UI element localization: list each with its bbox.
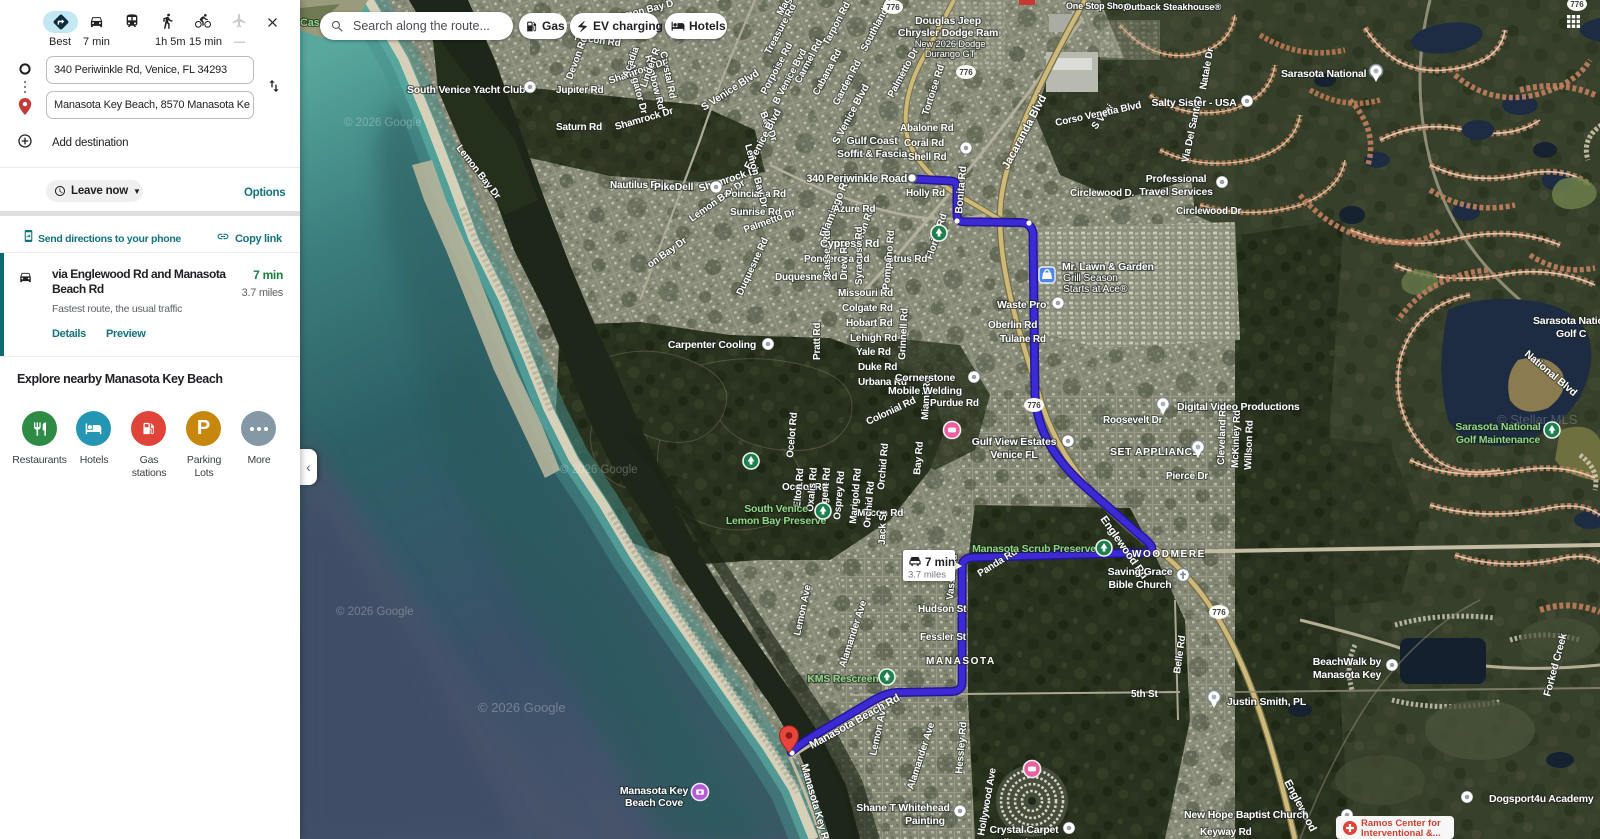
svg-text:Azure Rd: Azure Rd [833,204,875,215]
svg-text:Bible Church: Bible Church [1109,579,1172,591]
svg-text:© 2026 Google: © 2026 Google [336,606,414,618]
svg-text:Coral Rd: Coral Rd [904,138,944,149]
svg-text:Venice FL: Venice FL [990,449,1038,461]
svg-text:Dogsport4u Academy: Dogsport4u Academy [1489,793,1594,805]
svg-text:Lehigh Rd: Lehigh Rd [850,333,897,344]
svg-text:BeachWalk by: BeachWalk by [1313,656,1382,668]
svg-text:Roosevelt Dr: Roosevelt Dr [1103,415,1163,426]
svg-text:Soffit & Fascia: Soffit & Fascia [837,148,907,160]
svg-text:Willson Rd: Willson Rd [1243,420,1256,470]
svg-text:Painting: Painting [905,815,945,827]
svg-text:© 2026 Google: © 2026 Google [560,464,638,476]
svg-text:Lemon Bay Preserve: Lemon Bay Preserve [726,515,827,527]
svg-text:© 2026 Google: © 2026 Google [344,117,422,129]
svg-text:South Venice Yacht Club: South Venice Yacht Club [407,84,525,96]
svg-text:Waste Pro: Waste Pro [997,299,1046,311]
svg-text:Fessler St: Fessler St [920,632,967,643]
svg-text:Justin Smith, PL: Justin Smith, PL [1227,696,1307,708]
svg-text:New Hope Baptist Church: New Hope Baptist Church [1184,809,1308,821]
svg-text:776: 776 [1027,401,1041,410]
svg-text:Tulane Rd: Tulane Rd [1000,334,1046,345]
svg-text:Chrysler Dodge Ram: Chrysler Dodge Ram [898,27,998,39]
svg-text:One Stop Shop: One Stop Shop [1066,1,1129,11]
svg-text:Manasota Key: Manasota Key [620,785,689,797]
svg-text:776: 776 [959,68,973,77]
svg-text:Hobart Rd: Hobart Rd [846,318,893,329]
svg-text:Saturn Rd: Saturn Rd [556,122,602,133]
svg-text:7 min: 7 min [925,557,955,569]
svg-text:Hudson St: Hudson St [918,604,967,615]
svg-text:Crystal Carpet: Crystal Carpet [990,824,1060,836]
svg-text:5th St: 5th St [1131,689,1158,700]
svg-text:Duke Rd: Duke Rd [858,362,897,373]
svg-text:Durango GT: Durango GT [925,49,976,60]
svg-text:© 2026 Google: © 2026 Google [478,700,566,715]
svg-text:Cas: Cas [300,17,320,29]
svg-text:Sarasota Natio: Sarasota Natio [1533,315,1600,327]
svg-text:WOODMERE: WOODMERE [1132,549,1206,560]
svg-text:776: 776 [1570,0,1584,9]
svg-text:Carpenter Cooling: Carpenter Cooling [668,339,756,351]
svg-text:Circlewood D.: Circlewood D. [1070,188,1134,199]
svg-text:Sarasota National: Sarasota National [1281,68,1367,80]
svg-text:Outback Steakhouse®: Outback Steakhouse® [1124,2,1221,13]
svg-text:Colgate Rd: Colgate Rd [842,303,893,314]
svg-text:Shell Rd: Shell Rd [908,152,946,163]
svg-text:Saving Grace: Saving Grace [1108,566,1173,578]
svg-text:Pierce Dr: Pierce Dr [1166,471,1208,482]
svg-text:Cornerstone: Cornerstone [895,372,956,384]
svg-text:Circlewood Dr: Circlewood Dr [1176,206,1241,217]
svg-text:Salty Sister - USA: Salty Sister - USA [1151,97,1237,109]
svg-text:Pratt Rd: Pratt Rd [812,323,823,360]
svg-text:3.7 miles: 3.7 miles [908,570,946,581]
svg-text:Starts at Ace®: Starts at Ace® [1063,283,1128,295]
svg-text:776: 776 [1212,608,1226,617]
svg-text:Manasota Key: Manasota Key [1313,669,1382,681]
svg-text:Cypress Rd: Cypress Rd [820,238,879,250]
svg-text:Interventional &...: Interventional &... [1361,828,1441,839]
svg-text:South Venice: South Venice [744,503,808,515]
svg-text:Jupiter Rd: Jupiter Rd [556,85,604,96]
svg-text:© Stellar MLS: © Stellar MLS [1497,412,1578,427]
svg-text:Syracuse Rd: Syracuse Rd [854,227,865,285]
svg-text:Travel Services: Travel Services [1139,186,1213,198]
svg-text:Douglas Jeep: Douglas Jeep [915,15,981,27]
svg-text:Digital Video Productions: Digital Video Productions [1177,401,1300,413]
svg-text:KMS Rescreen: KMS Rescreen [807,673,878,685]
svg-text:Beach Cove: Beach Cove [625,797,683,809]
svg-text:Jack St: Jack St [877,510,889,545]
svg-text:Abalone Rd: Abalone Rd [900,123,954,134]
svg-text:Professional: Professional [1146,173,1207,185]
svg-text:Keyway Rd: Keyway Rd [1200,827,1252,838]
svg-text:Mobile Welding: Mobile Welding [888,385,962,397]
svg-text:340 Periwinkle Road: 340 Periwinkle Road [806,173,907,185]
svg-text:776: 776 [886,3,900,12]
svg-text:Golf Maintenance: Golf Maintenance [1456,434,1541,446]
svg-text:Purdue Rd: Purdue Rd [930,398,979,409]
svg-text:Gulf Coast: Gulf Coast [846,135,898,147]
svg-text:Golf C: Golf C [1556,328,1587,340]
svg-text:Holly Rd: Holly Rd [906,188,945,199]
svg-text:Shane T Whitehead: Shane T Whitehead [856,802,949,814]
svg-text:Manasota Scrub Preserve: Manasota Scrub Preserve [972,543,1096,555]
svg-text:MANASOTA: MANASOTA [926,656,996,667]
svg-text:Oberlin Rd: Oberlin Rd [988,320,1037,331]
svg-text:Gulf View Estates: Gulf View Estates [972,436,1057,448]
svg-text:PikeDell: PikeDell [654,181,694,193]
svg-text:Yale Rd: Yale Rd [856,347,891,358]
svg-text:SET APPLIANCE: SET APPLIANCE [1110,446,1200,458]
svg-text:McKinley Rd: McKinley Rd [1230,410,1243,468]
